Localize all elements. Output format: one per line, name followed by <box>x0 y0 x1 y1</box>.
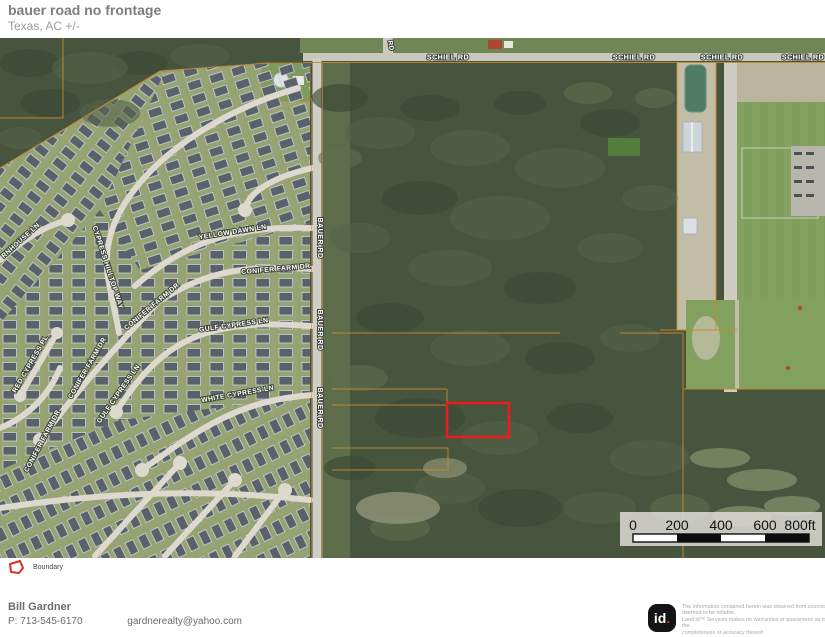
small-building <box>683 218 697 234</box>
road-label-bauer: BAUER RD <box>316 387 325 428</box>
farm-structures <box>488 40 513 49</box>
footer-contact: Bill Gardner P: 713-545-6170 gardnerealt… <box>8 601 242 627</box>
disclaimer-line: completeness or accuracy thereof. <box>682 630 825 636</box>
legend: Boundary <box>8 560 63 575</box>
scale-tick: 200 <box>665 517 689 533</box>
scale-tick: 600 <box>753 517 777 533</box>
agent-email: gardnerealty@yahoo.com <box>127 616 242 627</box>
scale-tick: 400 <box>709 517 733 533</box>
attribution: id. The information contained herein was… <box>648 604 825 636</box>
aerial-map-svg: SCHIEL RD SCHIEL RD SCHIEL RD SCHIEL RD … <box>0 38 825 558</box>
disclaimer: The information contained herein was obt… <box>682 604 825 636</box>
listing-flyer-page: bauer road no frontage Texas, AC +/- <box>0 0 825 637</box>
logo-text: id <box>654 610 666 626</box>
header: bauer road no frontage Texas, AC +/- <box>8 2 161 33</box>
agent-name: Bill Gardner <box>8 601 242 613</box>
road-label-bauer: BAUER RD <box>316 309 325 350</box>
logo-dot: . <box>666 610 670 626</box>
page-title: bauer road no frontage <box>8 2 161 19</box>
agent-phone: P: 713-545-6170 <box>8 616 83 627</box>
disclaimer-line: Land id™ Services makes no warranties or… <box>682 617 825 630</box>
aerial-map: SCHIEL RD SCHIEL RD SCHIEL RD SCHIEL RD … <box>0 38 825 558</box>
boundary-icon <box>8 560 25 575</box>
road-label-schiel: SCHIEL RD <box>701 53 743 62</box>
legend-boundary-label: Boundary <box>33 564 63 571</box>
green-clearing <box>608 138 640 156</box>
scale-tick: 800ft <box>784 517 815 533</box>
road-label-schiel: SCHIEL RD <box>782 53 824 62</box>
road-label-schiel: SCHIEL RD <box>613 53 655 62</box>
page-subtitle: Texas, AC +/- <box>8 19 161 33</box>
road-label-schiel: SCHIEL RD <box>427 53 469 62</box>
scale-bar: 0 200 400 600 800ft <box>620 512 822 546</box>
pond <box>685 65 706 112</box>
land-id-logo: id. <box>648 604 676 632</box>
road-label-bauer: BAUER RD <box>316 217 325 258</box>
east-parcels <box>677 62 825 392</box>
scale-tick: 0 <box>629 517 637 533</box>
